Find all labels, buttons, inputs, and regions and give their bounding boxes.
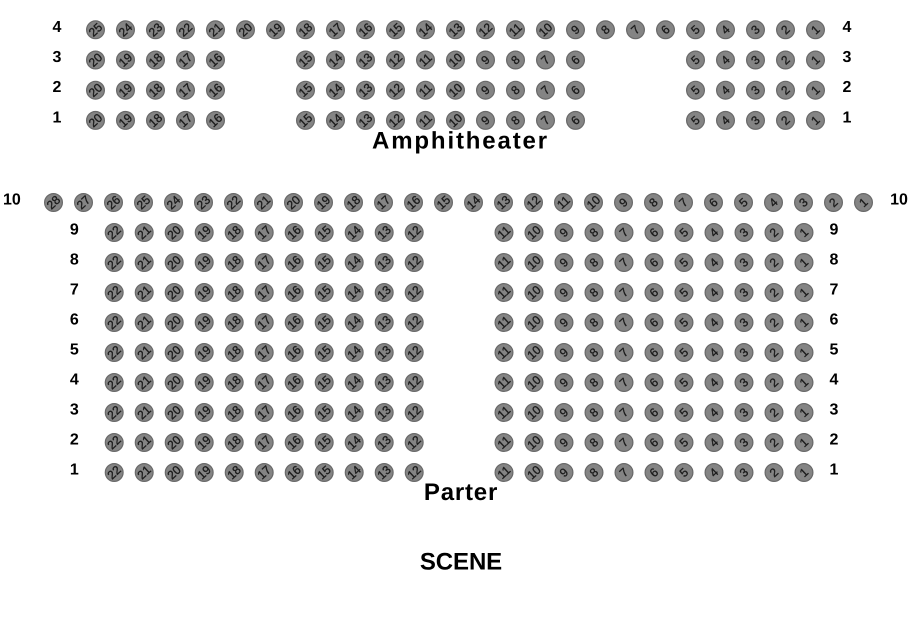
svg-text:27: 27 [74,193,94,213]
svg-text:21: 21 [135,223,155,243]
svg-text:15: 15 [386,20,406,40]
svg-text:3: 3 [843,49,852,66]
svg-text:21: 21 [254,193,274,213]
svg-text:22: 22 [105,403,125,423]
svg-text:12: 12 [405,433,425,453]
svg-text:12: 12 [405,253,425,273]
svg-text:9: 9 [830,222,839,239]
svg-text:20: 20 [86,111,106,131]
svg-text:24: 24 [164,193,184,213]
svg-text:10: 10 [3,192,21,209]
svg-text:18: 18 [225,433,245,453]
svg-text:10: 10 [524,283,544,303]
svg-text:12: 12 [405,403,425,423]
svg-text:10: 10 [446,80,466,100]
svg-text:10: 10 [524,403,544,423]
svg-text:16: 16 [285,373,305,393]
svg-text:16: 16 [285,403,305,423]
svg-text:14: 14 [345,313,365,333]
svg-text:20: 20 [86,80,106,100]
svg-text:2: 2 [830,432,839,449]
svg-text:Amphitheater: Amphitheater [372,128,549,155]
svg-text:10: 10 [524,433,544,453]
svg-text:20: 20 [165,313,185,333]
svg-text:17: 17 [255,463,275,483]
svg-text:21: 21 [135,433,155,453]
svg-text:10: 10 [524,373,544,393]
svg-text:20: 20 [165,223,185,243]
svg-text:21: 21 [135,343,155,363]
svg-text:14: 14 [345,403,365,423]
svg-text:20: 20 [165,463,185,483]
svg-text:18: 18 [225,403,245,423]
svg-text:20: 20 [165,283,185,303]
svg-text:4: 4 [843,19,852,36]
svg-text:20: 20 [165,253,185,273]
svg-text:17: 17 [255,283,275,303]
svg-text:22: 22 [105,343,125,363]
svg-text:14: 14 [326,111,346,131]
svg-text:15: 15 [434,193,454,213]
svg-text:15: 15 [315,433,335,453]
svg-text:21: 21 [135,373,155,393]
svg-text:19: 19 [116,111,136,131]
svg-text:19: 19 [116,80,136,100]
svg-text:13: 13 [375,463,395,483]
svg-text:19: 19 [195,223,215,243]
svg-text:17: 17 [374,193,394,213]
svg-text:19: 19 [116,50,136,70]
svg-text:25: 25 [134,193,154,213]
svg-text:13: 13 [375,313,395,333]
svg-text:16: 16 [285,343,305,363]
svg-text:19: 19 [195,253,215,273]
svg-text:12: 12 [386,50,406,70]
svg-text:16: 16 [206,50,226,70]
svg-text:14: 14 [416,20,436,40]
svg-text:10: 10 [890,192,908,209]
svg-text:8: 8 [70,252,79,269]
svg-text:22: 22 [105,373,125,393]
svg-text:2: 2 [53,79,62,96]
svg-text:13: 13 [375,403,395,423]
svg-text:4: 4 [53,19,62,36]
svg-text:22: 22 [224,193,244,213]
svg-text:16: 16 [285,223,305,243]
svg-text:3: 3 [53,49,62,66]
svg-text:10: 10 [446,50,466,70]
svg-text:8: 8 [830,252,839,269]
svg-text:14: 14 [345,373,365,393]
svg-text:16: 16 [285,463,305,483]
svg-text:20: 20 [284,193,304,213]
svg-text:21: 21 [135,463,155,483]
svg-text:12: 12 [524,193,544,213]
svg-text:18: 18 [146,50,166,70]
svg-text:18: 18 [225,313,245,333]
svg-text:2: 2 [70,432,79,449]
svg-text:18: 18 [146,80,166,100]
svg-text:14: 14 [345,343,365,363]
svg-text:2: 2 [843,79,852,96]
svg-text:21: 21 [135,403,155,423]
svg-text:14: 14 [345,283,365,303]
svg-text:18: 18 [344,193,364,213]
svg-text:15: 15 [315,373,335,393]
svg-text:13: 13 [446,20,466,40]
svg-text:18: 18 [225,343,245,363]
svg-text:19: 19 [195,313,215,333]
svg-text:18: 18 [225,223,245,243]
svg-text:7: 7 [70,282,79,299]
svg-text:28: 28 [44,193,64,213]
svg-text:19: 19 [195,343,215,363]
svg-text:17: 17 [176,50,196,70]
svg-text:13: 13 [494,193,514,213]
svg-text:14: 14 [326,80,346,100]
svg-text:22: 22 [105,283,125,303]
svg-text:1: 1 [53,109,62,126]
svg-text:22: 22 [105,313,125,333]
svg-text:14: 14 [345,223,365,243]
svg-text:10: 10 [524,463,544,483]
svg-text:16: 16 [285,283,305,303]
svg-text:14: 14 [345,463,365,483]
svg-text:20: 20 [236,20,256,40]
svg-text:19: 19 [195,433,215,453]
svg-text:1: 1 [830,462,839,479]
svg-text:6: 6 [70,312,79,329]
svg-text:22: 22 [105,463,125,483]
svg-text:21: 21 [206,20,226,40]
svg-text:15: 15 [296,111,316,131]
svg-text:3: 3 [830,402,839,419]
svg-text:13: 13 [375,433,395,453]
svg-text:18: 18 [225,283,245,303]
svg-text:19: 19 [314,193,334,213]
svg-text:10: 10 [524,253,544,273]
svg-text:12: 12 [405,463,425,483]
svg-text:17: 17 [176,80,196,100]
svg-text:18: 18 [225,373,245,393]
svg-text:14: 14 [464,193,484,213]
svg-text:5: 5 [830,342,839,359]
svg-text:21: 21 [135,253,155,273]
svg-text:19: 19 [266,20,286,40]
svg-text:17: 17 [326,20,346,40]
svg-text:13: 13 [375,223,395,243]
svg-text:16: 16 [206,80,226,100]
svg-text:19: 19 [195,283,215,303]
svg-text:13: 13 [375,343,395,363]
svg-text:22: 22 [176,20,196,40]
svg-text:15: 15 [315,403,335,423]
svg-text:20: 20 [165,433,185,453]
svg-text:18: 18 [296,20,316,40]
svg-text:14: 14 [345,253,365,273]
svg-text:25: 25 [86,20,106,40]
svg-text:22: 22 [105,433,125,453]
svg-text:1: 1 [70,462,79,479]
svg-text:17: 17 [255,343,275,363]
svg-text:12: 12 [386,80,406,100]
svg-text:15: 15 [296,80,316,100]
svg-text:19: 19 [195,463,215,483]
svg-text:15: 15 [315,283,335,303]
svg-text:16: 16 [206,111,226,131]
svg-text:17: 17 [255,223,275,243]
svg-text:15: 15 [315,463,335,483]
svg-text:10: 10 [524,313,544,333]
svg-text:24: 24 [116,20,136,40]
svg-text:17: 17 [255,253,275,273]
svg-text:16: 16 [285,433,305,453]
svg-text:10: 10 [524,343,544,363]
svg-text:13: 13 [356,80,376,100]
svg-text:16: 16 [285,313,305,333]
svg-text:12: 12 [405,223,425,243]
svg-text:10: 10 [536,20,556,40]
svg-text:4: 4 [830,372,839,389]
svg-text:15: 15 [315,343,335,363]
svg-text:14: 14 [345,433,365,453]
svg-text:16: 16 [404,193,424,213]
svg-text:17: 17 [255,403,275,423]
svg-text:23: 23 [194,193,214,213]
svg-text:13: 13 [375,283,395,303]
svg-text:13: 13 [375,373,395,393]
svg-text:15: 15 [296,50,316,70]
svg-text:22: 22 [105,253,125,273]
svg-text:22: 22 [105,223,125,243]
svg-text:10: 10 [584,193,604,213]
svg-text:13: 13 [375,253,395,273]
svg-text:15: 15 [315,223,335,243]
svg-text:12: 12 [405,283,425,303]
svg-text:4: 4 [70,372,79,389]
svg-text:9: 9 [70,222,79,239]
svg-text:16: 16 [356,20,376,40]
svg-text:18: 18 [225,463,245,483]
svg-text:21: 21 [135,283,155,303]
svg-text:26: 26 [104,193,124,213]
svg-text:18: 18 [146,111,166,131]
svg-text:19: 19 [195,403,215,423]
svg-text:17: 17 [255,433,275,453]
svg-text:SCENE: SCENE [420,549,502,576]
svg-text:17: 17 [255,313,275,333]
svg-text:10: 10 [524,223,544,243]
svg-text:15: 15 [315,253,335,273]
svg-text:18: 18 [225,253,245,273]
svg-text:3: 3 [70,402,79,419]
svg-text:1: 1 [843,109,852,126]
svg-text:Parter: Parter [424,479,498,506]
svg-text:12: 12 [405,343,425,363]
svg-text:20: 20 [165,403,185,423]
svg-text:12: 12 [476,20,496,40]
svg-text:16: 16 [285,253,305,273]
svg-text:12: 12 [405,373,425,393]
svg-text:15: 15 [315,313,335,333]
svg-text:6: 6 [830,312,839,329]
svg-text:13: 13 [356,50,376,70]
svg-text:17: 17 [255,373,275,393]
svg-text:20: 20 [86,50,106,70]
svg-text:5: 5 [70,342,79,359]
svg-text:14: 14 [326,50,346,70]
svg-text:12: 12 [405,313,425,333]
svg-text:20: 20 [165,343,185,363]
svg-text:21: 21 [135,313,155,333]
svg-text:23: 23 [146,20,166,40]
svg-text:7: 7 [830,282,839,299]
svg-text:19: 19 [195,373,215,393]
svg-text:20: 20 [165,373,185,393]
svg-text:17: 17 [176,111,196,131]
